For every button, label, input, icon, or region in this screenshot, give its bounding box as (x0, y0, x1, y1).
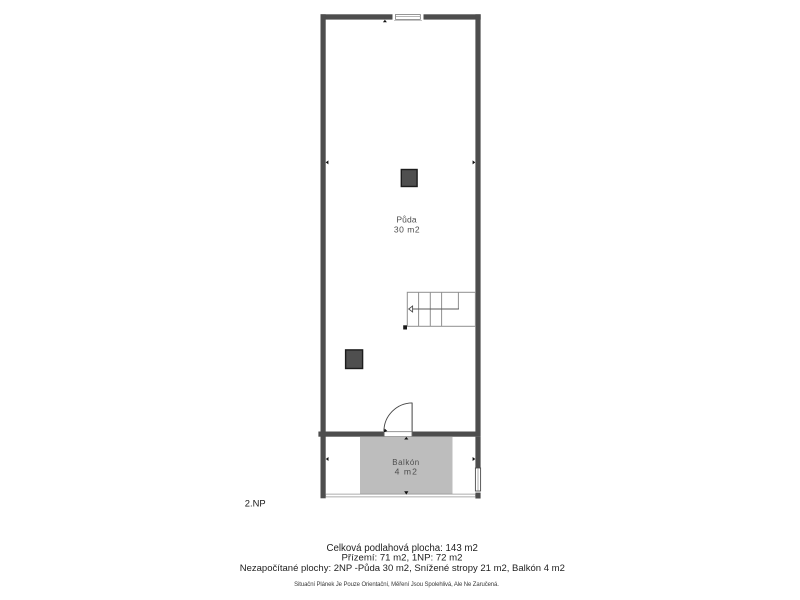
svg-text:Situační Plánek Je Pouze Orien: Situační Plánek Je Pouze Orientační, Měř… (294, 582, 499, 588)
svg-text:30 m2: 30 m2 (394, 224, 420, 234)
svg-text:2.NP: 2.NP (245, 497, 266, 508)
svg-text:Nezapočítané plochy: 2NP -Půda: Nezapočítané plochy: 2NP -Půda 30 m2, Sn… (240, 563, 565, 574)
svg-text:Půda: Půda (396, 214, 417, 224)
svg-text:4 m2: 4 m2 (395, 466, 418, 476)
svg-text:Přízemí: 71 m2, 1NP: 72 m2: Přízemí: 71 m2, 1NP: 72 m2 (341, 552, 462, 563)
